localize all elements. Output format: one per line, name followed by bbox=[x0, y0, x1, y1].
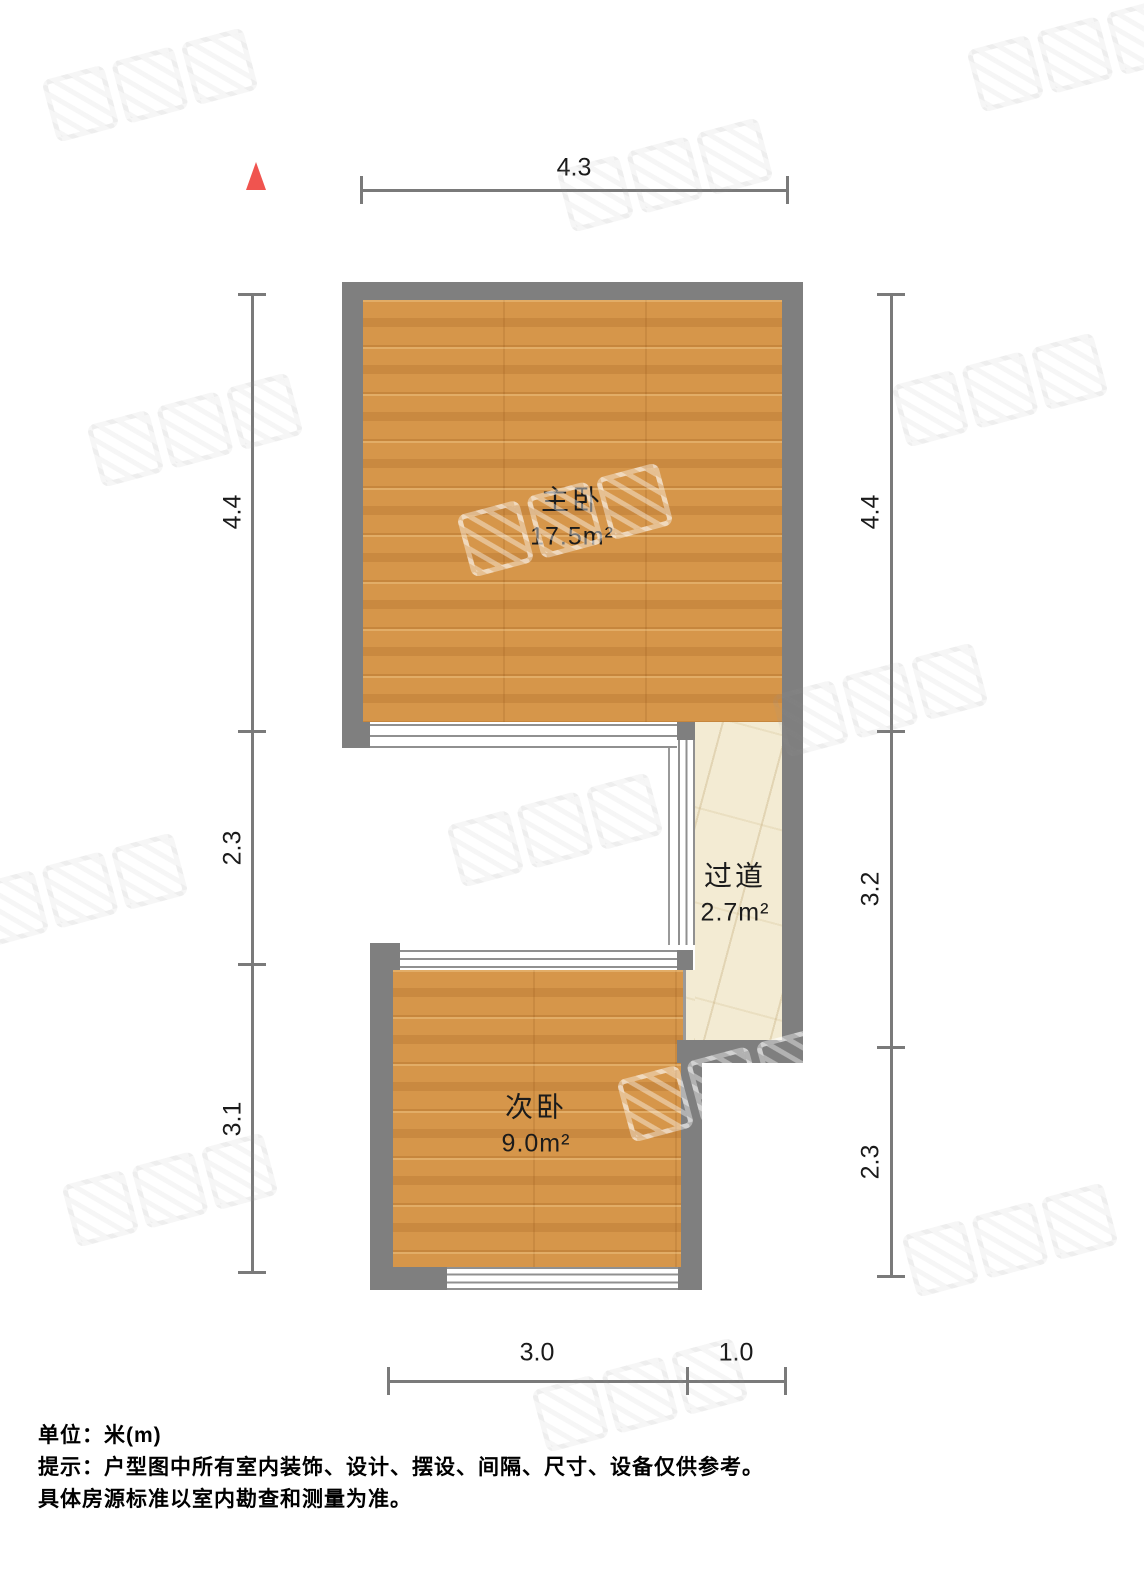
room-label-master: 主卧 17.5m² bbox=[530, 479, 614, 552]
watermark-glyph bbox=[891, 369, 969, 447]
watermark-glyph bbox=[910, 642, 988, 720]
void-boundary-line bbox=[668, 748, 670, 945]
dimension-label-left-2: 3.1 bbox=[219, 1102, 248, 1137]
room-area-second: 9.0m² bbox=[502, 1130, 571, 1159]
watermark bbox=[891, 332, 1108, 448]
watermark-glyph bbox=[585, 772, 663, 850]
footer-disclaimer-line2: 具体房源标准以室内勘查和测量为准。 bbox=[38, 1484, 764, 1516]
watermark-glyph bbox=[446, 809, 524, 887]
dimension-tick bbox=[238, 293, 266, 296]
dimension-label-right-2: 2.3 bbox=[857, 1145, 886, 1180]
wall-master-west bbox=[342, 282, 363, 748]
window-master-south bbox=[368, 724, 677, 748]
room-label-corridor: 过道 2.7m² bbox=[701, 855, 770, 928]
watermark bbox=[41, 27, 258, 143]
room-area-master: 17.5m² bbox=[530, 523, 614, 552]
watermark-glyph bbox=[626, 136, 704, 214]
watermark-glyph bbox=[180, 27, 258, 105]
room-name-master: 主卧 bbox=[530, 479, 614, 519]
watermark-glyph bbox=[156, 391, 234, 469]
watermark-glyph bbox=[971, 1201, 1049, 1279]
watermark bbox=[446, 772, 663, 888]
dimension-label-right-1: 3.2 bbox=[857, 872, 886, 907]
watermark-glyph bbox=[41, 851, 119, 929]
watermark-glyph bbox=[961, 351, 1039, 429]
north-indicator-icon bbox=[246, 162, 266, 190]
watermark bbox=[901, 1182, 1118, 1298]
wall-second-west bbox=[370, 943, 393, 1290]
footer-disclaimer: 单位：米(m) 提示：户型图中所有室内装饰、设计、摆设、间隔、尺寸、设备仅供参考… bbox=[38, 1420, 764, 1516]
dimension-label-bottom-1: 1.0 bbox=[719, 1339, 754, 1368]
watermark-glyph bbox=[0, 869, 50, 947]
watermark-glyph bbox=[1105, 0, 1144, 76]
window-second-north bbox=[393, 950, 677, 968]
room-name-corridor: 过道 bbox=[701, 855, 770, 895]
watermark-glyph bbox=[695, 117, 773, 195]
watermark-glyph bbox=[1030, 332, 1108, 410]
watermark-glyph bbox=[1040, 1182, 1118, 1260]
room-area-corridor: 2.7m² bbox=[701, 899, 770, 928]
wall-second-south-right bbox=[678, 1267, 702, 1290]
wall-second-northwest-corner bbox=[370, 943, 400, 970]
dimension-tick bbox=[238, 1271, 266, 1274]
dimension-line-top bbox=[361, 189, 788, 192]
wall-master-southeast-corner bbox=[677, 722, 695, 740]
dimension-label-bottom-0: 3.0 bbox=[520, 1339, 555, 1368]
wall-master-north bbox=[342, 282, 803, 300]
watermark bbox=[0, 832, 189, 948]
dimension-tick bbox=[238, 730, 266, 733]
room-divider-line bbox=[683, 970, 686, 1040]
dimension-label-right-0: 4.4 bbox=[857, 495, 886, 530]
dimension-tick bbox=[877, 293, 905, 296]
watermark-glyph bbox=[61, 1169, 139, 1247]
watermark-glyph bbox=[901, 1219, 979, 1297]
watermark bbox=[771, 642, 988, 758]
watermark-glyph bbox=[41, 64, 119, 142]
watermark bbox=[61, 1132, 278, 1248]
watermark-glyph bbox=[516, 791, 594, 869]
watermark-glyph bbox=[966, 34, 1044, 112]
dimension-tick bbox=[686, 1367, 689, 1395]
dimension-tick bbox=[784, 1367, 787, 1395]
watermark-glyph bbox=[111, 46, 189, 124]
watermark-glyph bbox=[841, 661, 919, 739]
dimension-tick bbox=[387, 1367, 390, 1395]
dimension-tick bbox=[786, 176, 789, 204]
dimension-label-left-1: 2.3 bbox=[219, 831, 248, 866]
room-label-second: 次卧 9.0m² bbox=[502, 1086, 571, 1159]
dimension-line-right bbox=[890, 294, 893, 1277]
dimension-tick bbox=[877, 1046, 905, 1049]
dimension-line-bottom bbox=[388, 1380, 785, 1383]
watermark bbox=[86, 372, 303, 488]
wall-second-northeast-corner bbox=[677, 950, 693, 970]
dimension-line-left bbox=[251, 294, 254, 1273]
footer-unit-note: 单位：米(m) bbox=[38, 1420, 764, 1452]
watermark-glyph bbox=[1036, 16, 1114, 94]
dimension-tick bbox=[238, 963, 266, 966]
watermark-glyph bbox=[200, 1132, 278, 1210]
dimension-label-top-0: 4.3 bbox=[557, 154, 592, 183]
watermark-glyph bbox=[86, 409, 164, 487]
wall-second-south-left bbox=[370, 1267, 447, 1290]
window-corridor-west bbox=[678, 740, 695, 945]
corridor-floor-extension bbox=[686, 970, 695, 1040]
watermark-glyph bbox=[110, 832, 188, 910]
window-second-south bbox=[447, 1267, 678, 1290]
dimension-tick bbox=[877, 1275, 905, 1278]
dimension-tick bbox=[877, 730, 905, 733]
wall-second-east bbox=[681, 1040, 702, 1290]
footer-disclaimer-line1: 提示：户型图中所有室内装饰、设计、摆设、间隔、尺寸、设备仅供参考。 bbox=[38, 1452, 764, 1484]
floorplan-page: { "rooms": [ {"name": "主卧", "area": "17.… bbox=[0, 0, 1144, 1569]
wall-east bbox=[782, 282, 803, 1063]
watermark bbox=[966, 0, 1144, 113]
watermark-glyph bbox=[225, 372, 303, 450]
dimension-label-left-0: 4.4 bbox=[219, 495, 248, 530]
watermark-glyph bbox=[131, 1151, 209, 1229]
room-name-second: 次卧 bbox=[502, 1086, 571, 1126]
dimension-tick bbox=[360, 176, 363, 204]
wall-master-southwest-corner bbox=[342, 722, 370, 748]
